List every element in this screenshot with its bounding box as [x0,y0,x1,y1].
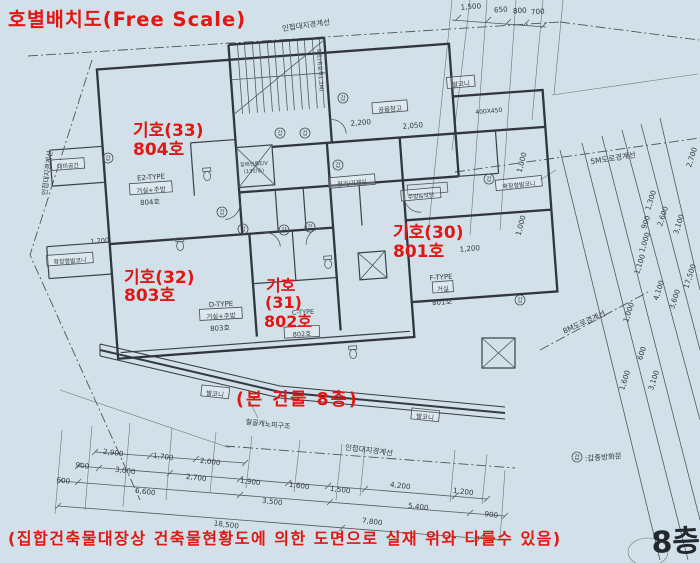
dimension-label: 1,700 [153,451,175,462]
dimension-label: 4,200 [390,480,412,491]
dimension-label: 700 [531,7,546,17]
dimension-label: 2,700 [186,472,208,483]
disclaimer-text: (집합건축물대장상 건축물현황도에 의한 도면으로 실재 위와 다를수 있음) [8,529,562,548]
floor-plan-document: 발코니발코니발코니공용창고대피공간확장형발코니확장형발코니주방&식당전기/기계실… [0,0,700,563]
dimension-label: 1,100 [632,253,647,276]
fire-door-marker: 갑 [486,175,491,183]
dimension-label: 1,000 [514,214,528,237]
dimension-label: 3,500 [262,496,284,507]
dimension-label: 2,600 [655,205,670,228]
dimension-label: 2,050 [402,120,424,131]
dimension-label: 5,400 [408,501,430,512]
room-label: 발코니 [452,78,471,89]
dimension-label: 900 [639,214,652,230]
dimension-label: 1,000 [621,301,636,324]
room-label: 인접대지경계선 [40,150,54,196]
floor-plan-drawing: 발코니발코니발코니공용창고대피공간확장형발코니확장형발코니주방&식당전기/기계실… [0,0,700,563]
fire-door-marker: 갑 [335,161,340,169]
stair-treads [229,39,330,115]
room-label: 발코니 [206,388,225,399]
dimension-label: 600 [56,475,71,486]
annotation-unit-30-line1: 기호(30) [393,223,463,243]
room-label: 대피공간 [57,161,80,171]
dimension-label: 3,100 [646,369,661,392]
generated-annotations: 발코니발코니발코니공용창고대피공간확장형발코니확장형발코니주방&식당전기/기계실… [40,1,699,530]
dimension-label: 4,100 [651,279,666,302]
annotation-unit-33-line1: 기호(33) [133,121,203,141]
room-label: 철골캐노피구조 [245,417,291,431]
dimension-label: 600 [635,345,648,361]
fire-door-marker: 갑 [307,223,312,231]
fire-door-marker: 갑 [105,154,110,162]
floor-stamp: 8층 [628,523,700,563]
legend-door-mark: 갑 [574,454,580,462]
room-label: 발코니 [416,411,435,422]
annotation-unit-33-line2: 804호 [133,140,184,160]
dimension-label: 2,200 [350,117,372,128]
dimension-label: 2,900 [103,447,125,458]
fire-door-marker: 갑 [277,129,282,137]
room-label: 801호 [432,298,453,307]
fire-door-legend: 갑 :갑종방화문 [572,450,622,463]
annotation-unit-32-line2: 803호 [124,286,175,306]
room-label: 5M도로경계선 [590,149,637,166]
dimension-label: 1,500 [460,1,482,11]
fire-door-marker: 갑 [240,225,245,233]
room-label: 804호 [140,198,161,207]
dimension-label: 900 [75,460,90,471]
dimension-label: 2,000 [200,456,222,467]
fire-door-marker: 갑 [281,226,286,234]
dimension-label: 650 [494,5,509,15]
legend-text: :갑종방화문 [584,450,622,463]
dimension-label: 3,000 [115,465,137,476]
annotation-unit-31-line2: (31) [265,293,302,312]
dimension-label: 1,300 [643,189,658,212]
dimension-label: 2,700 [684,146,699,169]
dimension-label: 17,500 [681,262,697,289]
dimension-label: 800 [513,6,528,16]
room-label: 8M도로경계선 [561,308,607,336]
room-label: 802호 [293,330,312,339]
dimension-label: 1,500 [330,484,352,495]
dimension-label: 1,200 [90,236,109,246]
building-floor-note: (본 건물 8층) [236,390,359,410]
room-label: (13인승) [244,167,265,175]
dimension-label: 7,800 [362,516,384,527]
room-label: 803호 [210,324,231,333]
fire-door-marker: 갑 [340,94,345,102]
dimension-label: 400X450 [475,107,503,116]
dimension-label: 1,900 [240,476,262,487]
dimension-label: 1,200 [459,243,481,254]
annotation-unit-32-line1: 기호(32) [124,268,194,288]
room-label: 인접대지경계선 [281,16,330,33]
annotation-unit-30-line2: 801호 [393,242,444,262]
fire-door-marker: 갑 [517,296,522,304]
room-label: 장애인용E/V [240,159,269,169]
fire-door-marker: 갑 [302,129,307,137]
floor-stamp-text: 8층 [651,523,700,560]
room-label: 복도(유효폭1.2M) [315,48,325,91]
dimension-label: 900 [484,509,499,520]
room-label: 거실 [437,284,450,294]
dimension-label: 1,600 [617,369,632,392]
fire-door-marker: 갑 [219,208,224,216]
room-label: E2-TYPE [137,173,165,183]
room-label: 공용창고 [378,104,403,114]
room-label: 거실+주방 [206,310,236,321]
dimension-label: 1,000 [637,231,652,254]
dimension-label: 1,600 [289,480,311,491]
drawing-title: 호별배치도(Free Scale) [8,8,246,31]
dimension-label: 3,100 [671,213,686,236]
annotation-unit-31-line3: 802호 [264,312,312,331]
dimension-label: 3,600 [667,288,682,311]
hatch-box [482,338,515,368]
